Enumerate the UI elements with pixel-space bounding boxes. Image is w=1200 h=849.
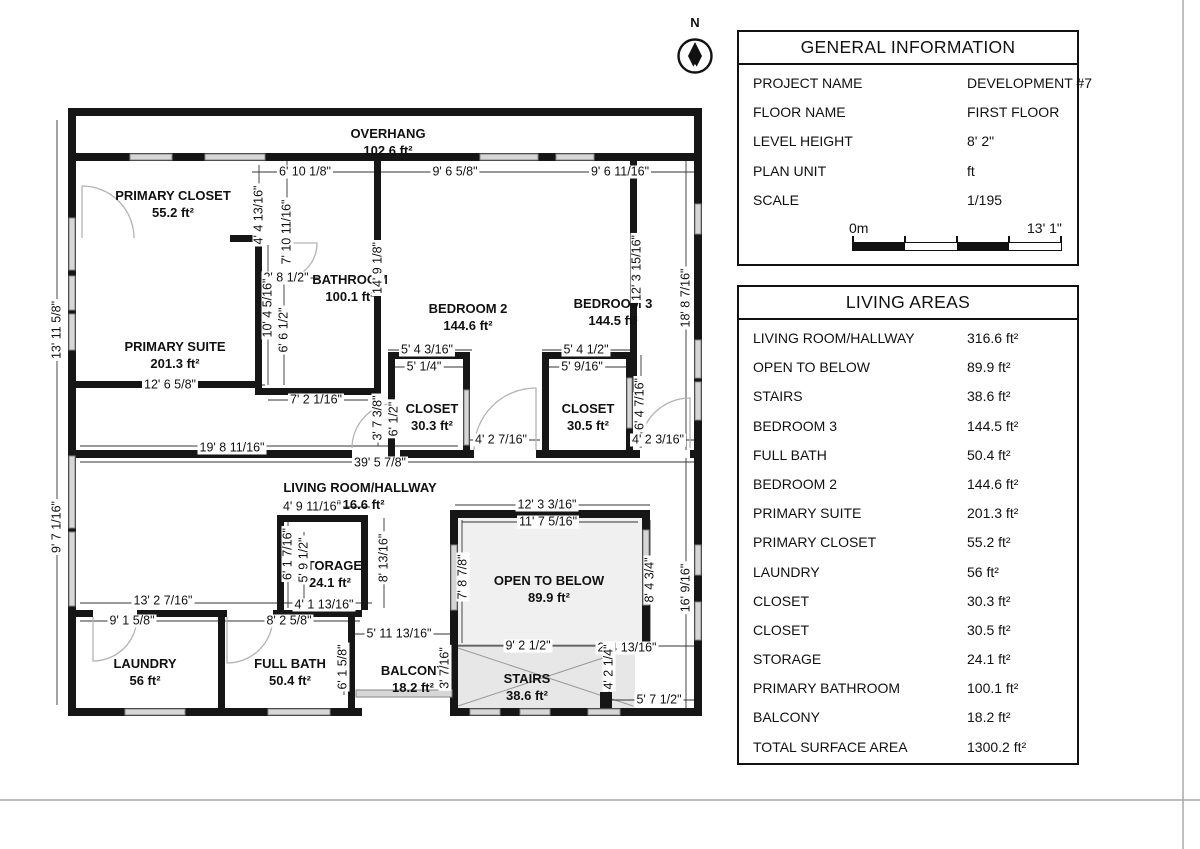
scale-bar-right-label: 13' 1" — [1027, 220, 1062, 236]
living-area-row: PRIMARY BATHROOM100.1 ft² — [739, 674, 1077, 703]
living-area-label: CLOSET — [753, 587, 809, 616]
living-area-value: 18.2 ft² — [967, 703, 1011, 732]
living-area-row: FULL BATH50.4 ft² — [739, 441, 1077, 470]
general-info-title: GENERAL INFORMATION — [739, 32, 1077, 65]
floorplan-sheet: OVERHANG102.6 ft²PRIMARY CLOSET55.2 ft²P… — [0, 0, 1200, 849]
living-area-row: PRIMARY SUITE201.3 ft² — [739, 499, 1077, 528]
living-area-value: 56 ft² — [967, 558, 999, 587]
general-info-row: FLOOR NAMEFIRST FLOOR — [739, 98, 1077, 127]
living-area-row: CLOSET30.5 ft² — [739, 616, 1077, 645]
living-area-row: PRIMARY CLOSET55.2 ft² — [739, 528, 1077, 557]
general-info-panel: GENERAL INFORMATION PROJECT NAMEDEVELOPM… — [737, 30, 1079, 266]
living-area-value: 89.9 ft² — [967, 353, 1011, 382]
living-area-label: LAUNDRY — [753, 558, 820, 587]
general-info-row: PLAN UNITft — [739, 157, 1077, 186]
living-area-label: LIVING ROOM/HALLWAY — [753, 324, 915, 353]
general-info-value: DEVELOPMENT #7 — [967, 69, 1092, 98]
living-area-value: 55.2 ft² — [967, 528, 1011, 557]
living-area-row: OPEN TO BELOW89.9 ft² — [739, 353, 1077, 382]
living-area-label: PRIMARY CLOSET — [753, 528, 876, 557]
living-area-value: 30.5 ft² — [967, 616, 1011, 645]
general-info-label: LEVEL HEIGHT — [753, 127, 853, 156]
living-area-value: 201.3 ft² — [967, 499, 1018, 528]
living-area-row: BALCONY18.2 ft² — [739, 703, 1077, 732]
general-info-row: SCALE1/195 — [739, 186, 1077, 215]
living-area-row: STORAGE24.1 ft² — [739, 645, 1077, 674]
living-area-label: FULL BATH — [753, 441, 827, 470]
living-area-value: 144.5 ft² — [967, 412, 1018, 441]
living-area-label: CLOSET — [753, 616, 809, 645]
living-area-label: OPEN TO BELOW — [753, 353, 870, 382]
general-info-value: 1/195 — [967, 186, 1002, 215]
general-info-value: ft — [967, 157, 975, 186]
living-area-value: 1300.2 ft² — [967, 733, 1026, 762]
living-area-value: 38.6 ft² — [967, 382, 1011, 411]
general-info-row: LEVEL HEIGHT8' 2" — [739, 127, 1077, 156]
living-area-value: 50.4 ft² — [967, 441, 1011, 470]
general-info-value: 8' 2" — [967, 127, 994, 156]
general-info-label: SCALE — [753, 186, 799, 215]
living-area-row: CLOSET30.3 ft² — [739, 587, 1077, 616]
living-area-row: BEDROOM 2144.6 ft² — [739, 470, 1077, 499]
living-area-value: 144.6 ft² — [967, 470, 1018, 499]
living-area-label: STAIRS — [753, 382, 803, 411]
living-area-value: 100.1 ft² — [967, 674, 1018, 703]
living-area-label: BEDROOM 2 — [753, 470, 837, 499]
general-info-label: PROJECT NAME — [753, 69, 862, 98]
scale-bar-graphic — [852, 242, 1062, 251]
living-area-label: BEDROOM 3 — [753, 412, 837, 441]
scale-bar: 0m 13' 1" — [739, 220, 1077, 264]
living-area-value: 30.3 ft² — [967, 587, 1011, 616]
general-info-value: FIRST FLOOR — [967, 98, 1059, 127]
living-area-label: PRIMARY SUITE — [753, 499, 861, 528]
living-areas-title: LIVING AREAS — [739, 287, 1077, 320]
living-area-label: PRIMARY BATHROOM — [753, 674, 900, 703]
general-info-label: PLAN UNIT — [753, 157, 826, 186]
living-area-label: BALCONY — [753, 703, 820, 732]
living-area-row: LAUNDRY56 ft² — [739, 558, 1077, 587]
general-info-label: FLOOR NAME — [753, 98, 846, 127]
north-arrow-icon: N — [671, 14, 719, 86]
living-area-label: TOTAL SURFACE AREA — [753, 733, 908, 762]
general-info-row: PROJECT NAMEDEVELOPMENT #7 — [739, 69, 1077, 98]
living-area-value: 24.1 ft² — [967, 645, 1011, 674]
floor-fills — [458, 518, 642, 708]
living-area-row: STAIRS38.6 ft² — [739, 382, 1077, 411]
living-area-row: TOTAL SURFACE AREA1300.2 ft² — [739, 733, 1077, 762]
living-area-row: LIVING ROOM/HALLWAY316.6 ft² — [739, 324, 1077, 353]
living-area-label: STORAGE — [753, 645, 821, 674]
living-areas-rows: LIVING ROOM/HALLWAY316.6 ft²OPEN TO BELO… — [739, 324, 1077, 762]
scale-bar-left-label: 0m — [849, 220, 868, 236]
living-areas-panel: LIVING AREAS LIVING ROOM/HALLWAY316.6 ft… — [737, 285, 1079, 765]
living-area-row: BEDROOM 3144.5 ft² — [739, 412, 1077, 441]
general-info-rows: PROJECT NAMEDEVELOPMENT #7FLOOR NAMEFIRS… — [739, 69, 1077, 215]
living-area-value: 316.6 ft² — [967, 324, 1018, 353]
north-label: N — [690, 15, 699, 30]
